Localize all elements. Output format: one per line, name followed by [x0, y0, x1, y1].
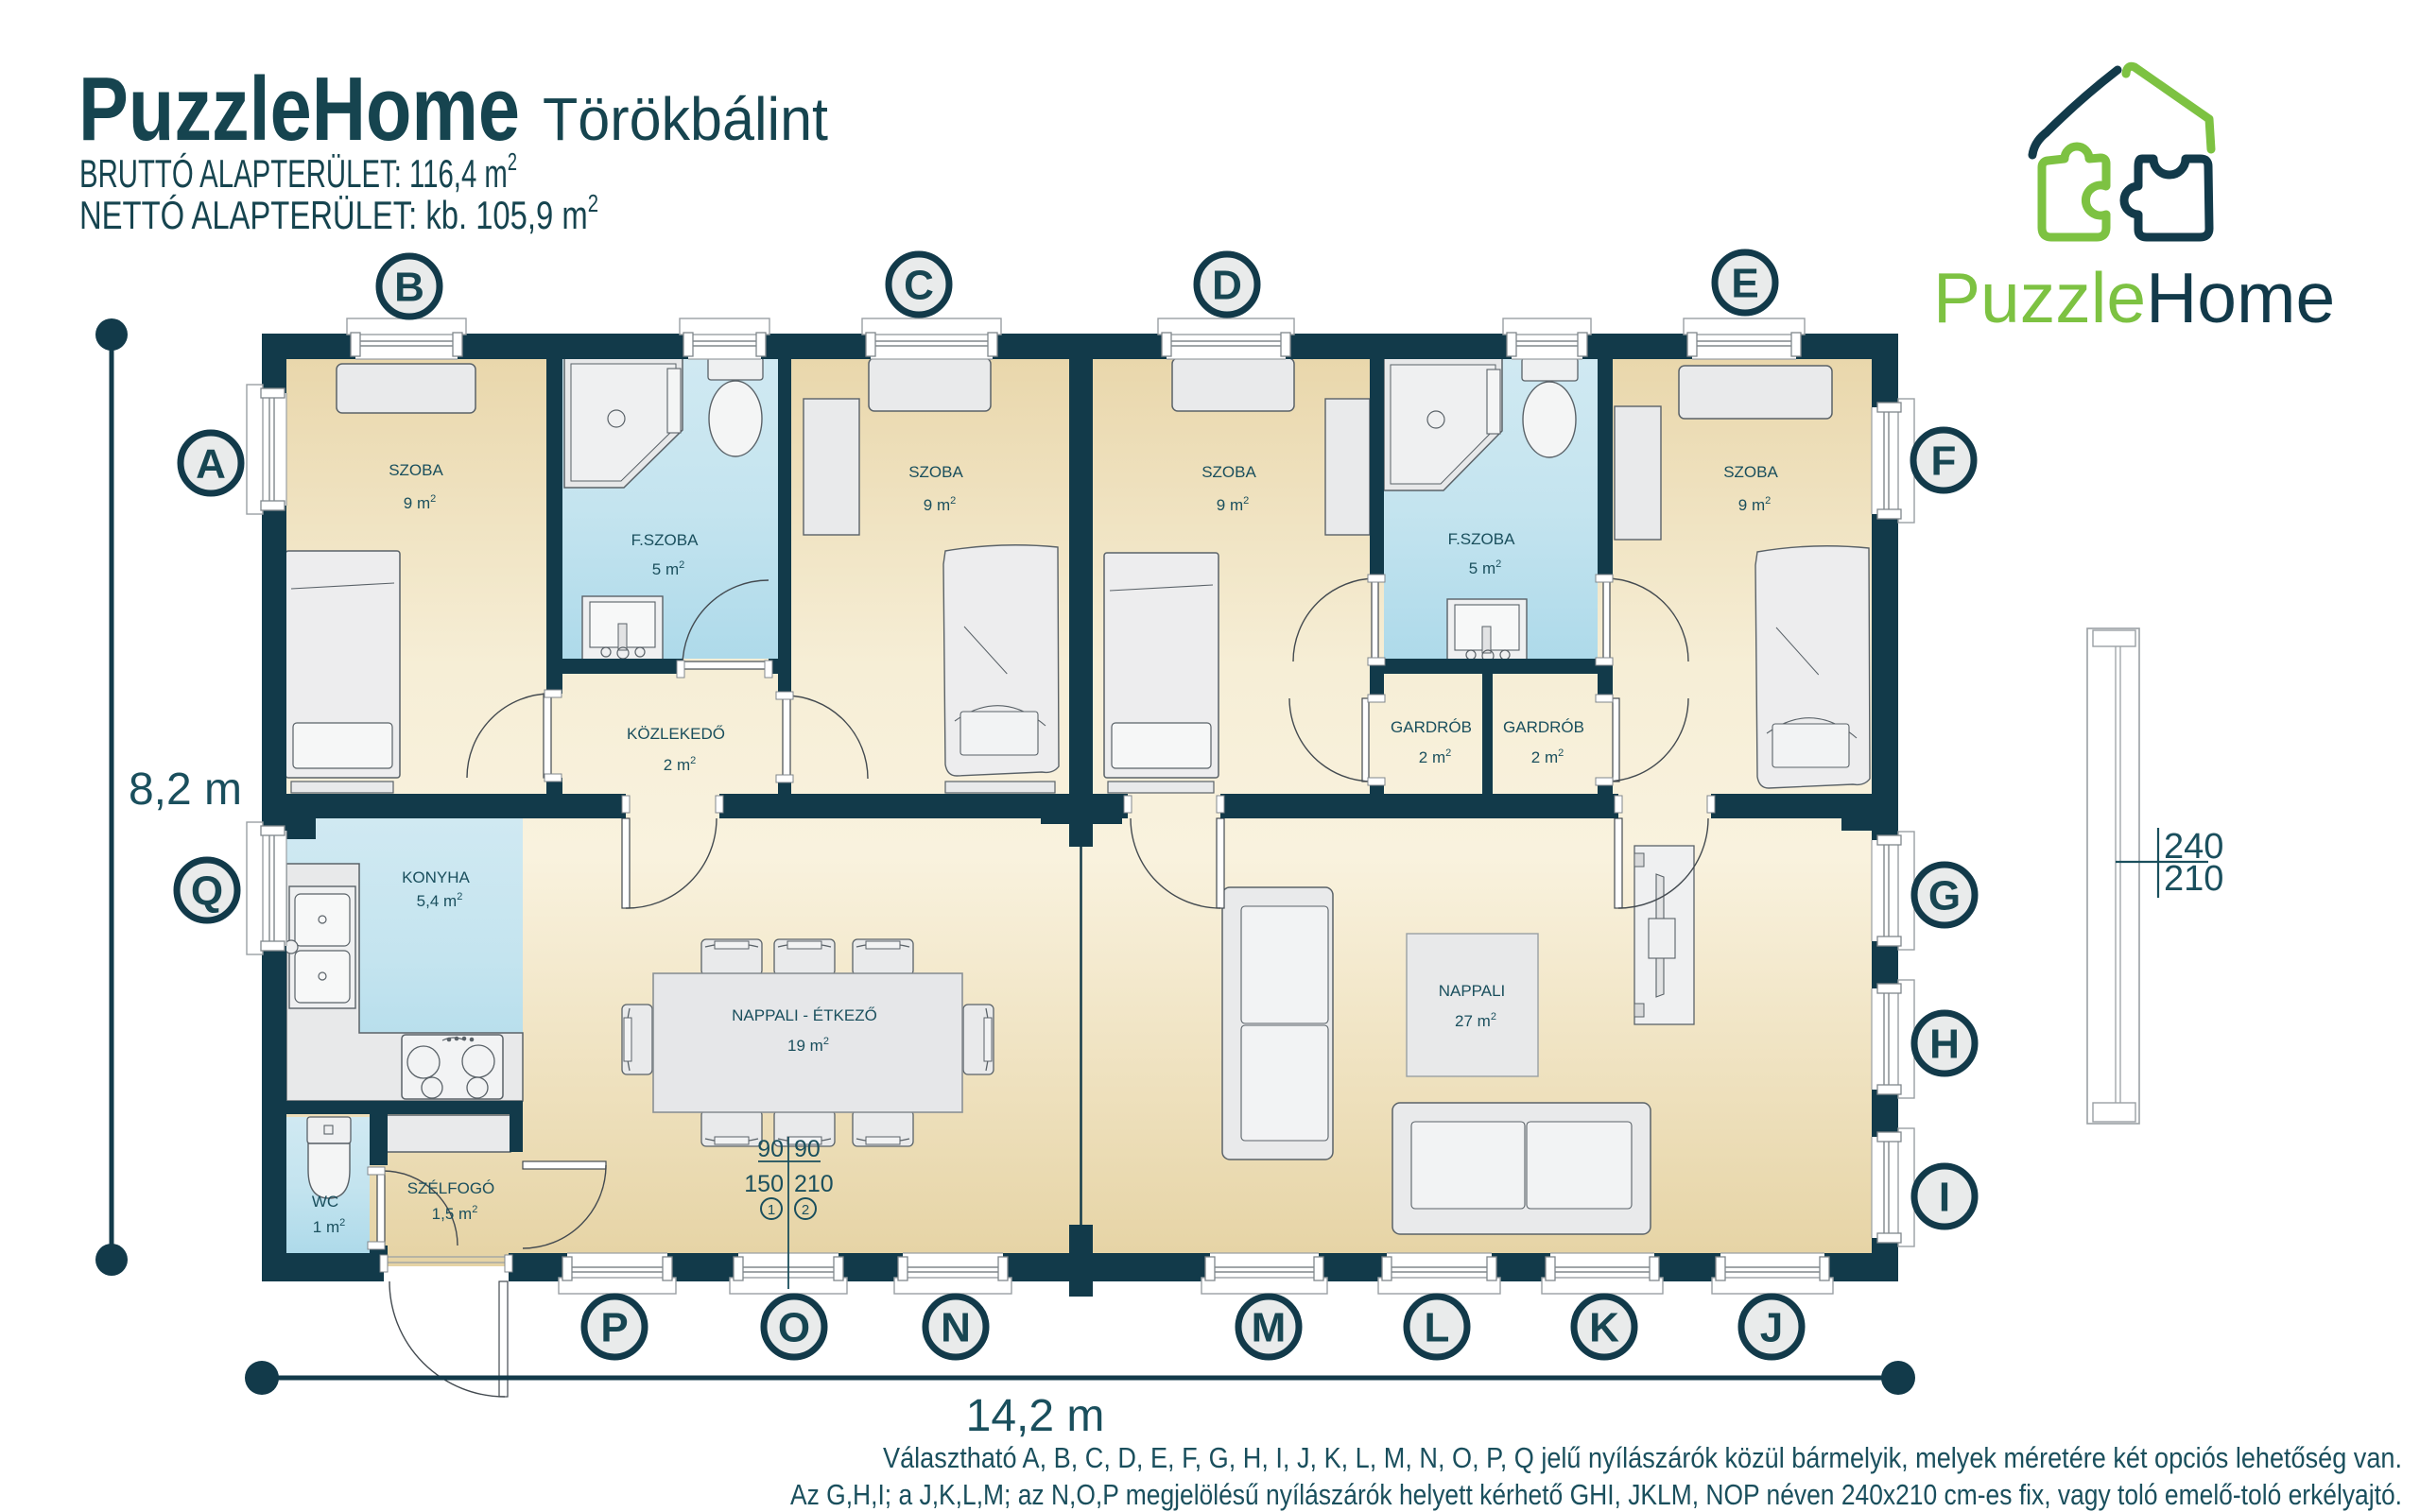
svg-text:1: 1 — [768, 1202, 775, 1218]
svg-text:N: N — [941, 1305, 971, 1351]
svg-text:NAPPALI: NAPPALI — [1439, 982, 1506, 1000]
svg-text:M: M — [1252, 1305, 1287, 1351]
svg-text:210: 210 — [2164, 859, 2223, 899]
svg-text:NAPPALI - ÉTKEZŐ: NAPPALI - ÉTKEZŐ — [732, 1006, 877, 1024]
svg-text:27 m2: 27 m2 — [1455, 1011, 1496, 1030]
svg-text:C: C — [904, 263, 934, 309]
svg-text:P: P — [600, 1305, 628, 1351]
svg-text:PuzzleHome: PuzzleHome — [78, 59, 520, 160]
svg-text:BRUTTÓ ALAPTERÜLET: 116,4 m2: BRUTTÓ ALAPTERÜLET: 116,4 m2 — [79, 147, 517, 196]
svg-text:B: B — [394, 265, 424, 311]
svg-text:A: A — [196, 441, 226, 488]
svg-text:210: 210 — [794, 1171, 834, 1197]
svg-text:PuzzleHome: PuzzleHome — [1933, 258, 2335, 337]
svg-text:90: 90 — [794, 1136, 821, 1162]
svg-text:O: O — [778, 1305, 810, 1351]
svg-text:GARDRÓB: GARDRÓB — [1503, 718, 1584, 736]
svg-text:SZOBA: SZOBA — [908, 463, 963, 481]
svg-text:Választható A, B, C, D, E, F,: Választható A, B, C, D, E, F, G, H, I, J… — [883, 1441, 2402, 1474]
svg-text:D: D — [1212, 263, 1242, 309]
svg-text:SZOBA: SZOBA — [389, 461, 443, 479]
svg-text:SZOBA: SZOBA — [1723, 463, 1778, 481]
svg-text:Q: Q — [191, 868, 223, 915]
svg-text:19 m2: 19 m2 — [787, 1036, 829, 1055]
svg-text:F: F — [1931, 438, 1957, 485]
svg-text:KONYHA: KONYHA — [402, 868, 470, 886]
svg-text:150: 150 — [744, 1171, 784, 1197]
svg-text:5,4 m2: 5,4 m2 — [417, 891, 463, 910]
svg-text:I: I — [1939, 1175, 1950, 1221]
svg-text:SZÉLFOGÓ: SZÉLFOGÓ — [407, 1179, 495, 1197]
svg-text:Törökbálint: Törökbálint — [543, 85, 828, 153]
svg-text:F.SZOBA: F.SZOBA — [1448, 530, 1516, 548]
svg-text:L: L — [1425, 1305, 1450, 1351]
svg-text:NETTÓ ALAPTERÜLET: kb. 105,9 m: NETTÓ ALAPTERÜLET: kb. 105,9 m2 — [79, 189, 598, 237]
svg-text:1,5 m2: 1,5 m2 — [432, 1204, 478, 1223]
svg-text:90: 90 — [757, 1136, 784, 1162]
svg-text:KÖZLEKEDŐ: KÖZLEKEDŐ — [627, 725, 725, 743]
svg-text:H: H — [1929, 1022, 1960, 1068]
svg-text:14,2 m: 14,2 m — [966, 1391, 1105, 1441]
svg-text:GARDRÓB: GARDRÓB — [1391, 718, 1472, 736]
svg-text:J: J — [1760, 1305, 1783, 1351]
svg-text:8,2 m: 8,2 m — [129, 765, 242, 815]
svg-text:2: 2 — [802, 1202, 809, 1218]
svg-text:F.SZOBA: F.SZOBA — [631, 531, 700, 549]
svg-text:WC: WC — [312, 1193, 338, 1211]
svg-text:G: G — [1928, 873, 1961, 919]
svg-text:E: E — [1731, 261, 1758, 307]
svg-text:Az G,H,I; a J,K,L,M; az N,O,P: Az G,H,I; a J,K,L,M; az N,O,P megjelölés… — [790, 1478, 2402, 1511]
svg-text:K: K — [1589, 1305, 1619, 1351]
svg-text:SZOBA: SZOBA — [1201, 463, 1256, 481]
